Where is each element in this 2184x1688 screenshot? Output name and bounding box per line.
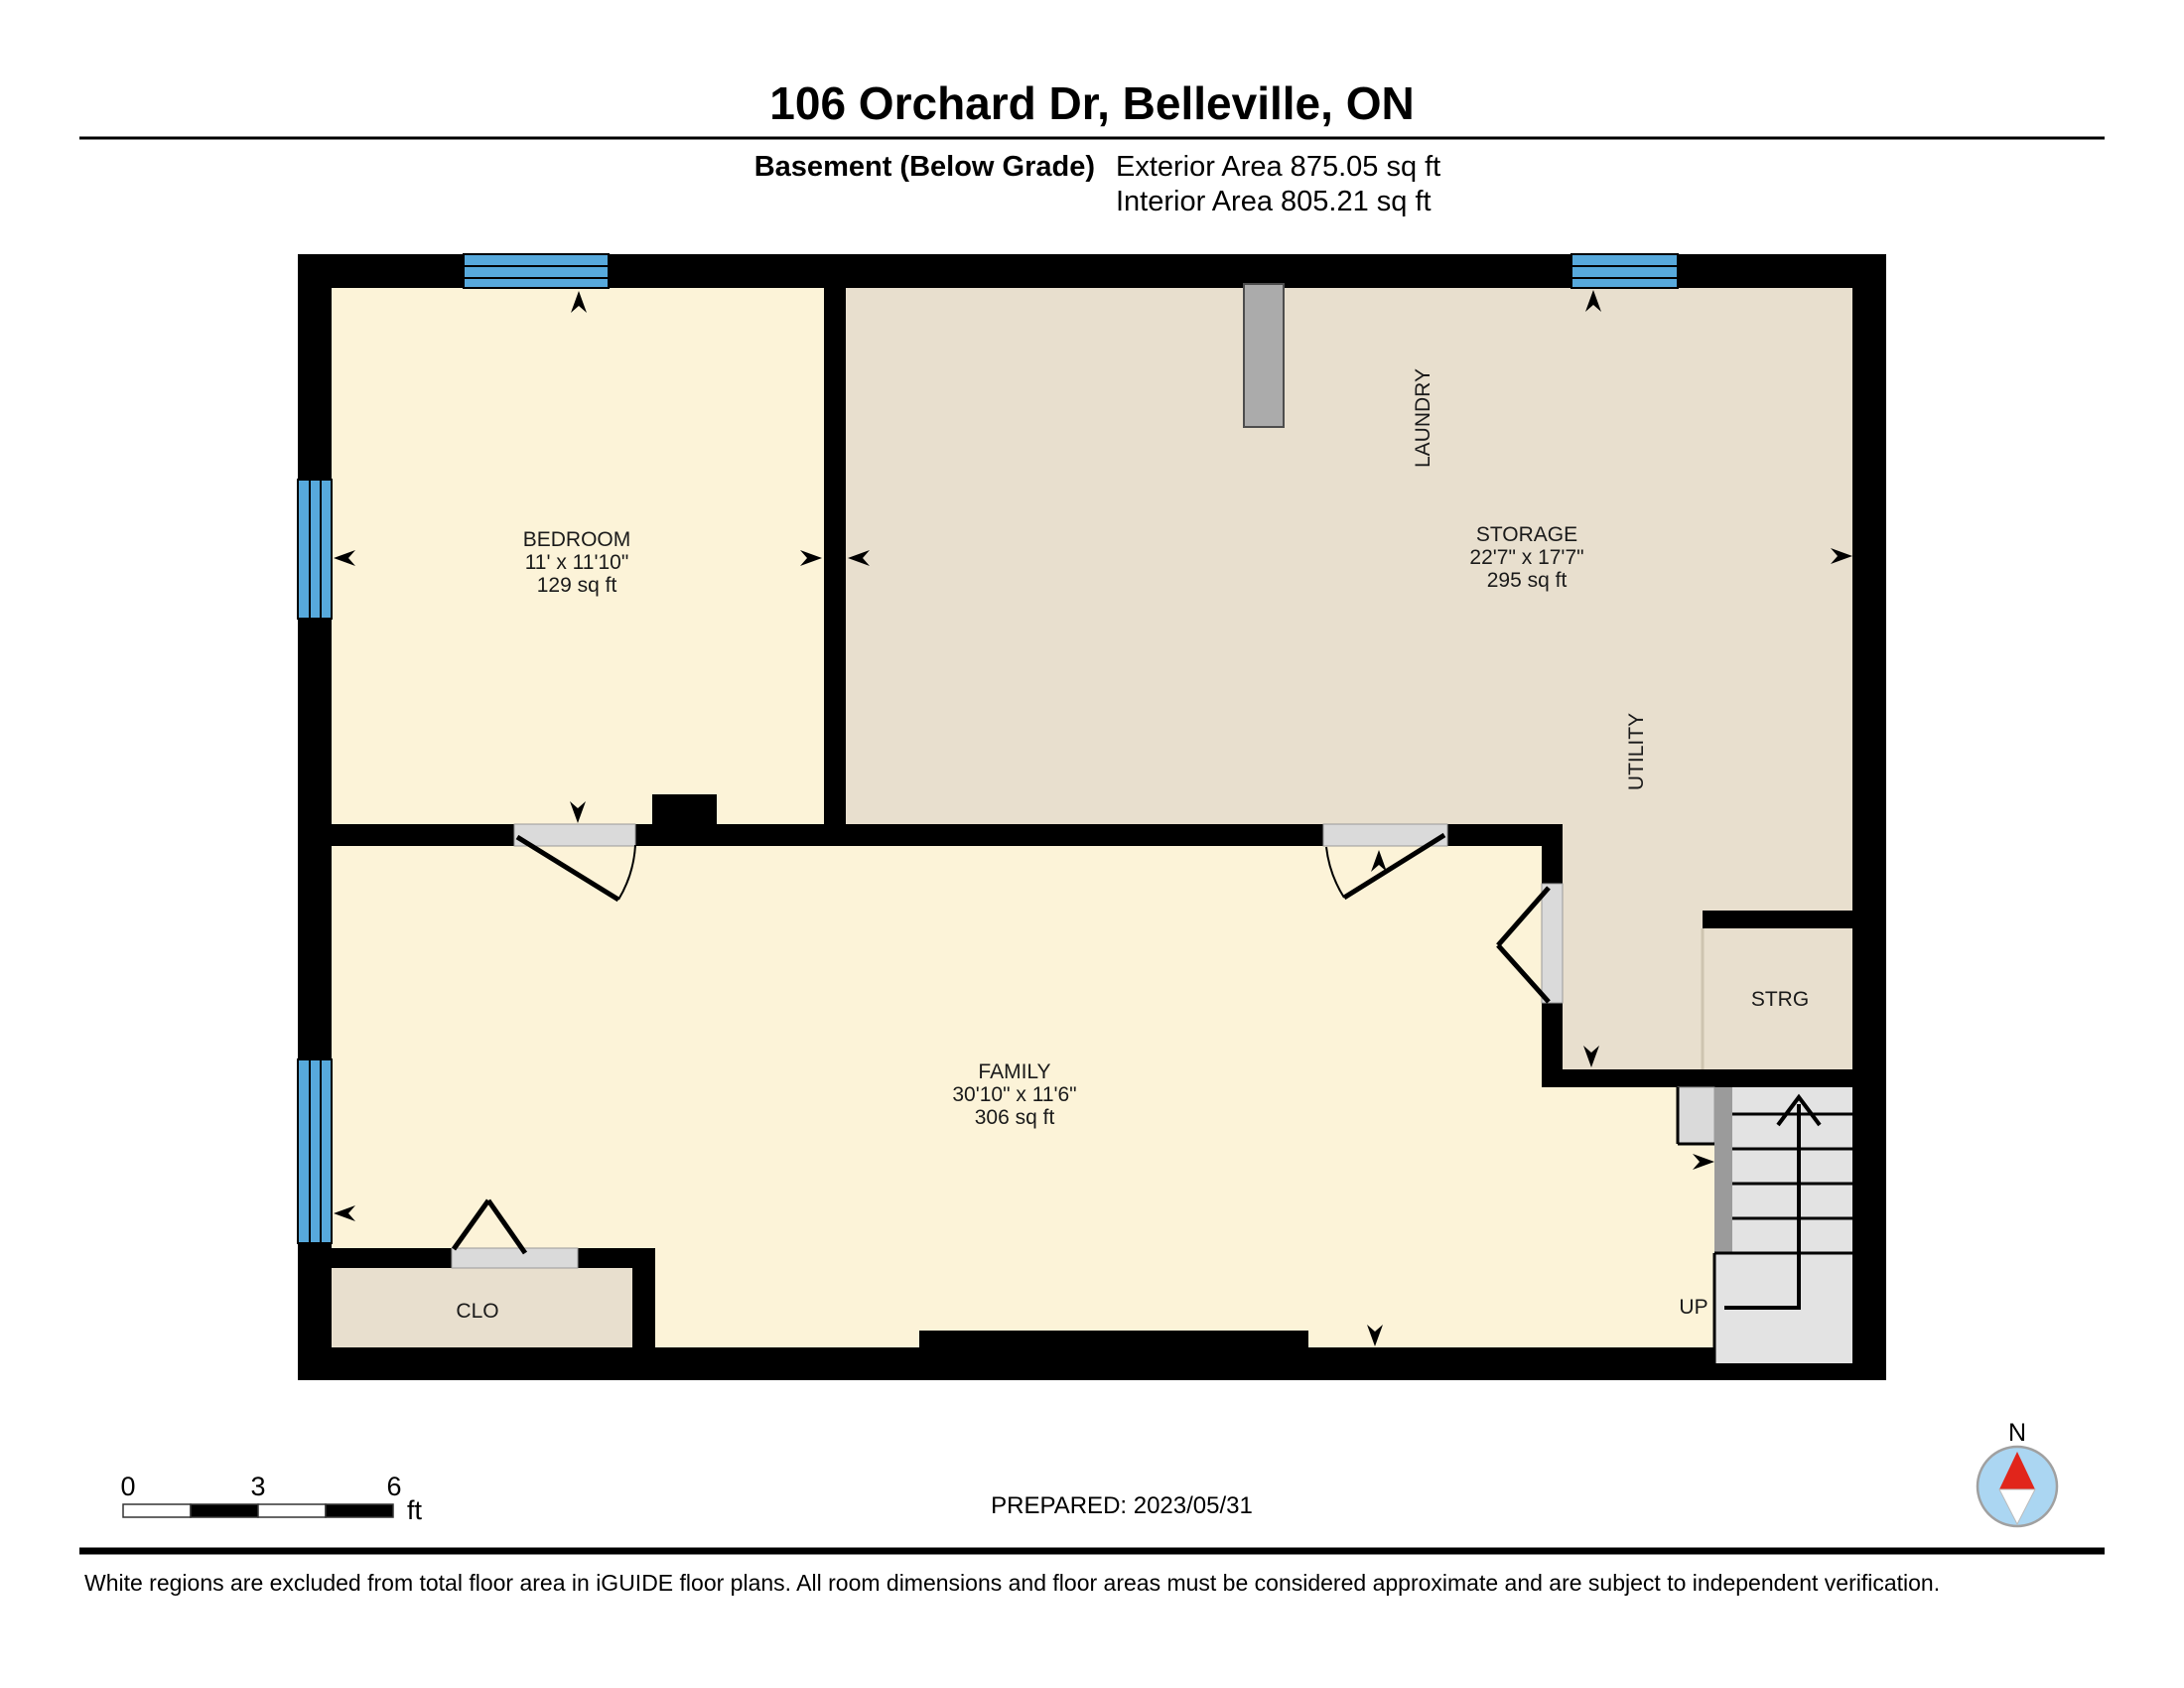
prepared-date: PREPARED: 2023/05/31: [991, 1492, 1253, 1519]
window-symbol-bedroom-left: [298, 480, 332, 619]
scale-segment: [191, 1504, 258, 1517]
svg-text:FAMILY: FAMILY: [978, 1060, 1050, 1083]
compass-icon: N: [1978, 1419, 2057, 1526]
svg-text:22'7" x 17'7": 22'7" x 17'7": [1469, 546, 1583, 569]
clo-door-jamb: [452, 1248, 578, 1268]
bedroom-door-jamb: [514, 824, 635, 846]
scale-bar: 0 3 6 ft: [120, 1472, 422, 1525]
room-label-laundry: LAUNDRY: [1412, 368, 1434, 468]
utility-door-jamb: [1542, 884, 1563, 1003]
floorplan-canvas: 106 Orchard Dr, Belleville, ON Basement …: [0, 0, 2184, 1688]
svg-text:129 sq ft: 129 sq ft: [537, 574, 617, 597]
stair-upper: [1732, 1087, 1852, 1253]
window-symbol-storage-top: [1571, 254, 1678, 288]
storage-floor: [846, 288, 1852, 826]
floor-label: Basement (Below Grade): [754, 151, 1095, 183]
svg-text:BEDROOM: BEDROOM: [523, 528, 631, 551]
room-label-utility: UTILITY: [1625, 713, 1648, 790]
scale-tick-0: 0: [120, 1472, 135, 1501]
wall-strg-top: [1703, 911, 1852, 928]
scale-segment: [258, 1504, 326, 1517]
wall-bottom-notch: [919, 1331, 1308, 1347]
wall-clo-right: [632, 1248, 655, 1347]
wall-utility-bottom: [1542, 1069, 1852, 1087]
stair-top-landing: [1678, 1087, 1714, 1144]
compass-north-label: N: [2008, 1419, 2026, 1447]
utility-floor: [1563, 826, 1852, 1069]
room-label-clo: CLO: [456, 1300, 498, 1323]
interior-area-label: Interior Area 805.21 sq ft: [1116, 186, 1432, 217]
footer-disclaimer: White regions are excluded from total fl…: [84, 1570, 1940, 1596]
svg-text:STORAGE: STORAGE: [1476, 523, 1577, 546]
scale-segment: [123, 1504, 191, 1517]
svg-text:30'10" x 11'6": 30'10" x 11'6": [952, 1083, 1076, 1106]
scale-tick-3: 3: [250, 1472, 265, 1501]
scale-tick-6: 6: [386, 1472, 401, 1501]
exterior-area-label: Exterior Area 875.05 sq ft: [1116, 151, 1440, 183]
floor-plan: BEDROOM 11' x 11'10" 129 sq ft STORAGE 2…: [298, 254, 1886, 1380]
stairs-up-label: UP: [1679, 1296, 1707, 1319]
wall-bump: [652, 794, 717, 824]
footer: White regions are excluded from total fl…: [79, 1551, 2105, 1596]
window-symbol-bedroom-top: [464, 254, 609, 288]
svg-text:295 sq ft: 295 sq ft: [1487, 569, 1568, 592]
wall-bedroom-right: [824, 254, 846, 846]
stair-rail: [1714, 1087, 1732, 1253]
window-symbol-family-left: [298, 1059, 332, 1243]
svg-text:306 sq ft: 306 sq ft: [975, 1106, 1055, 1129]
room-label-strg: STRG: [1751, 988, 1809, 1011]
page-title: 106 Orchard Dr, Belleville, ON: [769, 77, 1414, 129]
floorplan-page: 106 Orchard Dr, Belleville, ON Basement …: [0, 0, 2184, 1688]
duct: [1244, 284, 1284, 427]
room-label-bedroom: BEDROOM 11' x 11'10" 129 sq ft: [523, 528, 631, 597]
header: 106 Orchard Dr, Belleville, ON Basement …: [79, 77, 2105, 217]
svg-text:11' x 11'10": 11' x 11'10": [525, 551, 629, 574]
scale-unit-label: ft: [407, 1495, 423, 1525]
scale-segment: [326, 1504, 393, 1517]
